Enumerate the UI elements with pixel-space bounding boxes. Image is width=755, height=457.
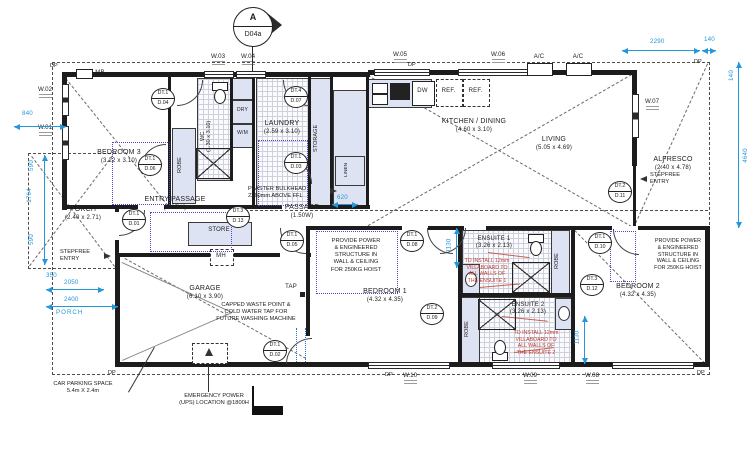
door-tag-d08: DT.1D.08 xyxy=(400,230,424,252)
robe-label: ROBE xyxy=(464,308,470,350)
tap-label: TAP xyxy=(282,284,300,291)
arrow-right-icon xyxy=(104,253,111,259)
dim-line xyxy=(46,306,118,307)
door-tag-d02: DT.1D.02 xyxy=(263,340,287,362)
window-label-w03: W.03 xyxy=(206,53,230,62)
dim-4640: 4640 xyxy=(742,148,749,163)
room-label-porch: PORCH(2.40 x 2.71) xyxy=(58,206,108,223)
toilet xyxy=(494,340,506,355)
window-label-w08: W.08 xyxy=(580,372,604,381)
dim-590a: 590 xyxy=(28,160,35,171)
robe-label: ROBE xyxy=(177,144,183,186)
dim-1130-ens1: 1130 xyxy=(446,238,453,252)
toilet xyxy=(530,241,542,256)
provision-zone xyxy=(610,231,636,282)
meter-box-label: MB xyxy=(92,70,108,77)
note-hoist-bed1: PROVIDE POWER & ENGINEERED STRUCTURE IN … xyxy=(316,238,396,274)
window-w02 xyxy=(62,84,69,116)
window-w06 xyxy=(458,69,534,76)
dp-marker: DP xyxy=(408,62,416,68)
room-label-wc: WC (1.30 x 3.10) xyxy=(200,100,212,172)
section-code: D04a xyxy=(234,27,272,43)
dp-marker: DP xyxy=(50,63,58,69)
dim-line xyxy=(332,204,358,205)
dryer-label: DRY xyxy=(232,108,253,114)
arrow-left-icon xyxy=(640,176,647,182)
tap-point xyxy=(300,292,305,297)
room-label-storage: STORAGE xyxy=(313,108,319,168)
door-tag-d10: DT.1D.10 xyxy=(588,232,612,254)
dim-line xyxy=(584,316,585,364)
dp-marker: DP xyxy=(108,370,116,376)
room-label-entry-passage: ENTRY PASSAGE(1.95W) xyxy=(138,196,212,213)
window-label-w09: W.09 xyxy=(518,372,542,381)
dim-1130-bed2: 1130 xyxy=(574,330,581,344)
dim-2290: 2290 xyxy=(650,38,665,45)
fridge-label: REF. xyxy=(463,88,488,95)
dim-1764: 1764 xyxy=(26,188,33,203)
door-tag-d03: DT.1D.03 xyxy=(284,152,308,174)
ac-label: A/C xyxy=(527,54,551,61)
wm-provision xyxy=(305,328,306,362)
dp-marker: DP xyxy=(694,59,702,65)
kitchen-sink xyxy=(372,83,388,94)
dim-2400: 2400 xyxy=(64,296,79,303)
room-label-bedroom2: BEDROOM 2(4.32 x 4.35) xyxy=(604,283,672,300)
meter-box xyxy=(76,69,93,79)
door-tag-d11: DT.2D.11 xyxy=(608,181,632,203)
window-w05 xyxy=(374,69,430,76)
dim-140-top: 140 xyxy=(704,36,715,43)
dim-line xyxy=(44,155,45,265)
dim-line xyxy=(46,289,104,290)
wall xyxy=(366,75,369,208)
alfresco-slider-wall xyxy=(633,164,636,228)
basin xyxy=(558,306,570,321)
cooktop xyxy=(390,83,410,100)
room-label-passage: PASSAGE(1.50W) xyxy=(280,204,324,221)
arrow-up-icon xyxy=(205,348,213,356)
note-bulkhead: PLASTER BULKHEAD 2260mm ABOVE FFL xyxy=(248,186,330,200)
dim-620: 620 xyxy=(337,194,348,201)
dp-marker: DP xyxy=(385,372,393,378)
ups-leader xyxy=(208,366,209,392)
room-label-kitchen: KITCHEN / DINING(4.60 x 3.10) xyxy=(428,118,520,135)
window-w07 xyxy=(632,94,639,138)
note-hoist-bed2: PROVIDE POWER & ENGINEERED STRUCTURE IN … xyxy=(650,238,706,272)
room-label-garage: GARAGE(6.10 x 3.90) xyxy=(168,285,242,302)
room-label-ensuite2: ENSUITE 2(3.26 x 2.13) xyxy=(502,302,554,316)
window-w09 xyxy=(492,362,560,369)
dim-line xyxy=(622,50,700,51)
dim-840: 840 xyxy=(22,110,33,117)
note-ups: EMERGENCY POWER (UPS) LOCATION @1800H xyxy=(164,393,264,407)
door-tag-d07: DT.4D.07 xyxy=(284,86,308,108)
door-tag-d01: DT.1D.01 xyxy=(122,209,146,231)
door-tag-d05: DT.1D.05 xyxy=(280,230,304,252)
door-tag-d09: DT.2D.09 xyxy=(420,303,444,325)
window-label-w10: W.10 xyxy=(398,372,422,381)
dim-590b: 590 xyxy=(28,234,35,245)
manhole-label: MH xyxy=(210,253,232,260)
door-tag-d12: DT.3D.12 xyxy=(580,274,604,296)
window-w04 xyxy=(236,71,266,78)
room-label-laundry: LAUNDRY(2.59 x 3.10) xyxy=(256,120,308,137)
room-label-store: STORE xyxy=(188,227,250,234)
note-stepfree-right: STEPFREE ENTRY xyxy=(650,172,692,186)
dp-marker: DP xyxy=(697,370,705,376)
window-label-w07: W.07 xyxy=(640,98,664,107)
window-w10 xyxy=(368,362,450,369)
room-label-alfresco: ALFRESCO(2.40 x 4.78) xyxy=(643,156,703,173)
window-w03 xyxy=(204,71,234,78)
wm-provision xyxy=(296,328,297,362)
dim-line xyxy=(456,228,457,268)
toilet xyxy=(214,89,226,104)
section-marker-leader xyxy=(252,45,253,72)
dim-2050: 2050 xyxy=(64,279,79,286)
wm-label: W/M xyxy=(232,131,253,137)
scale-mark-bar xyxy=(252,406,283,415)
wall xyxy=(573,226,710,230)
dim-line xyxy=(738,62,739,228)
dim-line xyxy=(702,50,716,51)
note-car-space: CAR PARKING SPACE 5.4m X 2.4m xyxy=(36,381,130,395)
window-label-w05: W.05 xyxy=(388,51,412,60)
arrow-right-icon xyxy=(330,188,337,194)
room-label-living: LIVING(5.05 x 4.69) xyxy=(518,136,590,153)
dim-porch-label: PORCH xyxy=(56,309,83,316)
wall xyxy=(571,226,575,367)
linen-cupboard xyxy=(335,156,365,186)
ac-unit xyxy=(566,63,592,76)
section-marker: A D04a xyxy=(233,7,273,47)
note-waste: CAPPED WASTE POINT & COLD WATER TAP FOR … xyxy=(205,302,307,323)
dishwasher-label: DW xyxy=(412,88,433,95)
note-villaboard-ens2: TO INSTALL 12mm VILLABOARD TO ALL WALLS … xyxy=(508,330,564,356)
ensuite-divider-wall xyxy=(462,293,571,297)
room-label-bedroom1: BEDROOM 1(4.32 x 4.35) xyxy=(344,288,426,305)
bedroom3-robe xyxy=(172,128,196,204)
window-label-w04: W.04 xyxy=(236,53,260,62)
kitchen-tall-cabinets xyxy=(333,90,367,207)
linen-label: LINEN xyxy=(344,159,349,181)
floor-plan: W.03 W.04 W.05 W.06 W.02 W.01 W.07 W.10 … xyxy=(0,0,755,457)
kitchen-sink xyxy=(372,94,388,105)
window-w08 xyxy=(612,362,694,369)
section-letter: A xyxy=(234,8,272,27)
window-w01 xyxy=(62,126,69,160)
wall xyxy=(115,257,120,367)
dim-350: 350 xyxy=(46,272,57,279)
door-tag-d04: DT.1D.04 xyxy=(151,88,175,110)
fridge-label: REF. xyxy=(436,88,461,95)
door-tag-d06: DT.1D.06 xyxy=(138,154,162,176)
door-tag-d13: DT.3D.13 xyxy=(226,206,250,228)
dim-line xyxy=(14,126,66,127)
note-villaboard-ens1: TO INSTALL 12mm VILLABOARD TO ALL WALLS … xyxy=(460,258,514,284)
room-label-ensuite1: ENSUITE 1(3.26 x 2.13) xyxy=(468,236,520,250)
window-label-w06: W.06 xyxy=(486,51,510,60)
window-label-w02: W.02 xyxy=(34,86,56,95)
note-stepfree-left: STEPFREE ENTRY xyxy=(60,249,104,263)
robe-label: ROBE xyxy=(554,240,560,282)
ac-label: A/C xyxy=(566,54,590,61)
dim-140-right: 140 xyxy=(728,70,735,81)
shower xyxy=(512,262,550,293)
ac-unit xyxy=(527,63,553,76)
